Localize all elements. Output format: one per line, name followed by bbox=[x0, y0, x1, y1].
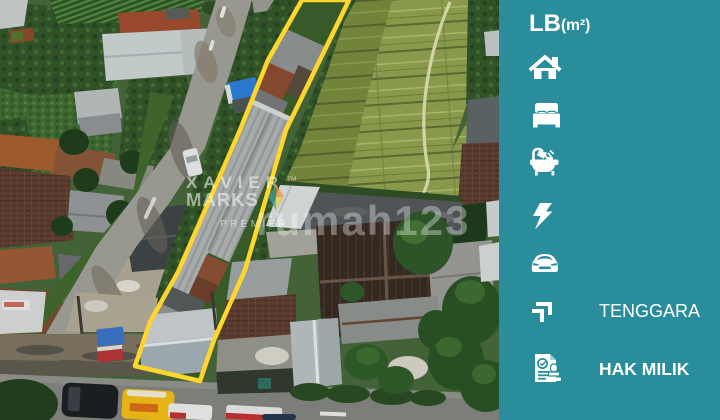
svg-text:MARKS: MARKS bbox=[186, 189, 259, 210]
svg-text:TENGGARA: TENGGARA bbox=[599, 301, 700, 321]
svg-text:rumah123: rumah123 bbox=[256, 197, 470, 244]
svg-text:TM: TM bbox=[287, 176, 296, 183]
svg-text:LB: LB bbox=[529, 10, 561, 37]
svg-text:(m²): (m²) bbox=[561, 17, 590, 34]
svg-text:HAK MILIK: HAK MILIK bbox=[599, 359, 690, 379]
